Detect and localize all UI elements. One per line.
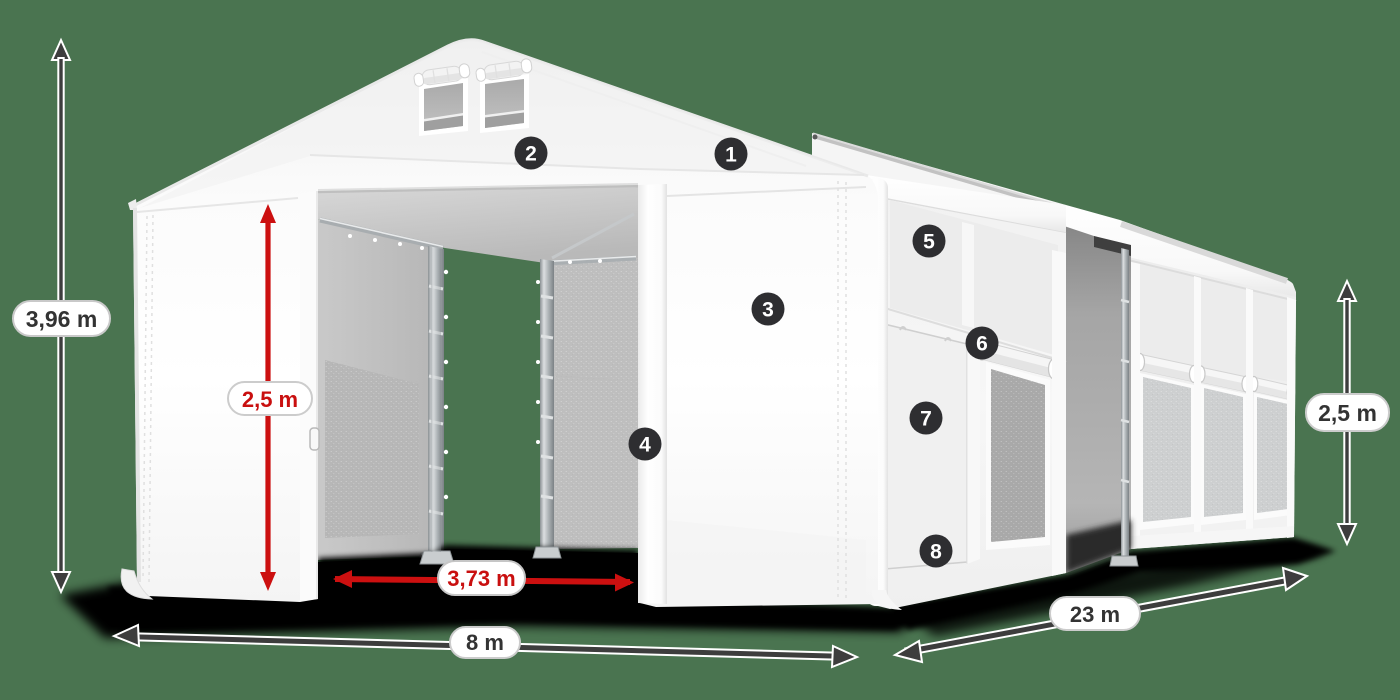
svg-text:8 m: 8 m [466, 630, 504, 655]
svg-text:2,5 m: 2,5 m [242, 387, 298, 412]
svg-text:6: 6 [976, 333, 988, 356]
svg-text:23 m: 23 m [1070, 602, 1120, 627]
svg-text:1: 1 [725, 144, 737, 167]
svg-text:3: 3 [762, 299, 774, 322]
svg-text:4: 4 [639, 434, 651, 457]
svg-text:2: 2 [525, 143, 537, 166]
svg-text:3,73 m: 3,73 m [447, 566, 516, 591]
svg-text:8: 8 [930, 541, 942, 564]
svg-text:7: 7 [920, 408, 932, 431]
svg-text:3,96 m: 3,96 m [26, 306, 98, 332]
svg-text:5: 5 [923, 231, 935, 254]
svg-text:2,5 m: 2,5 m [1318, 400, 1377, 426]
